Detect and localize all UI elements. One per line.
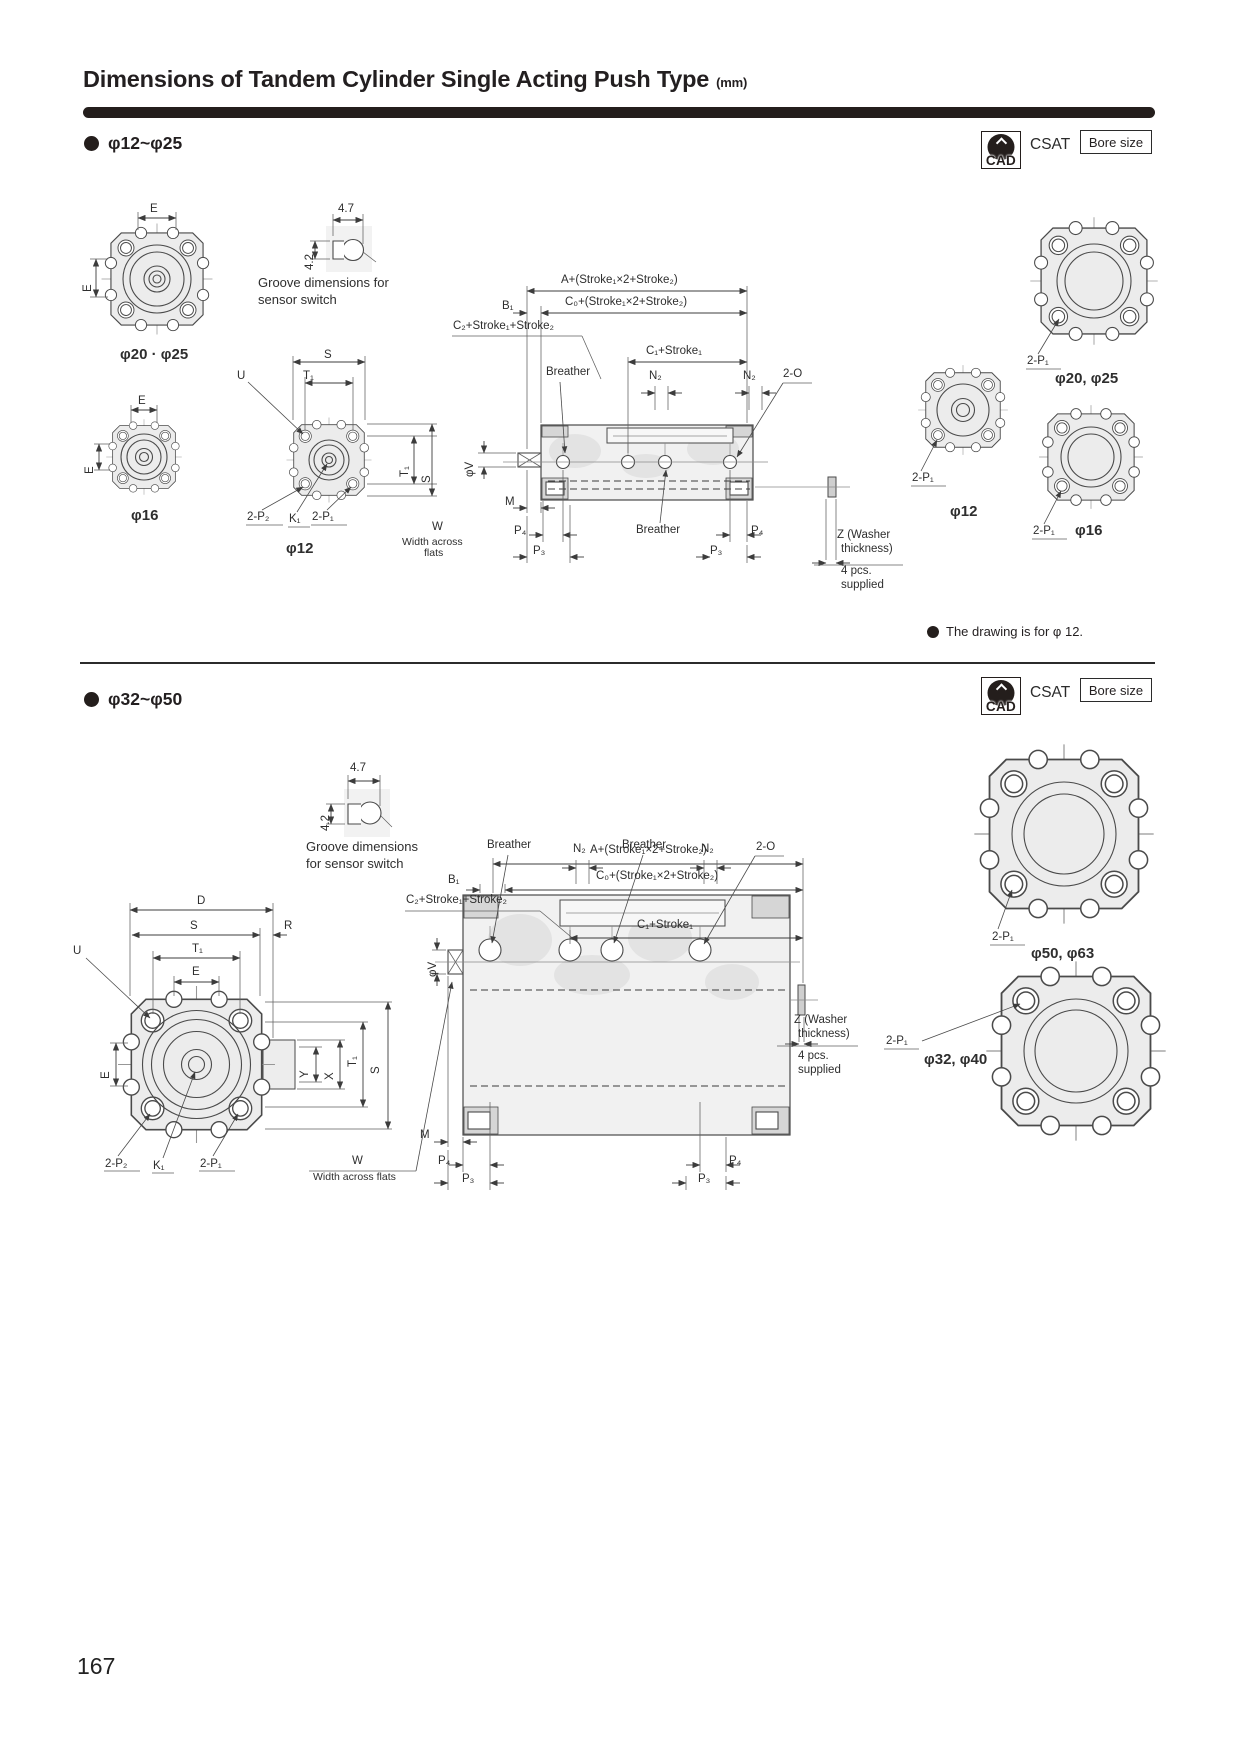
side-section-view-s1 bbox=[452, 286, 903, 565]
section-divider bbox=[80, 662, 1155, 664]
side-section-view-s2 bbox=[309, 855, 858, 1190]
rear-view-phi32-40 bbox=[884, 961, 1166, 1140]
mounting-face-view-phi12 bbox=[246, 356, 437, 527]
rear-view-phi20-25 bbox=[1026, 217, 1158, 369]
drawing-note-text: The drawing is for φ 12. bbox=[946, 624, 1083, 639]
cad-label: CAD bbox=[986, 700, 1016, 714]
sensor-groove-detail-2 bbox=[326, 775, 392, 837]
cad-label: CAD bbox=[986, 154, 1016, 168]
rear-view-phi16 bbox=[1032, 405, 1143, 539]
drawings-layer bbox=[0, 0, 1240, 1754]
drawing-note: The drawing is for φ 12. bbox=[927, 624, 1083, 639]
rear-view-phi50-63 bbox=[974, 744, 1153, 945]
front-view-phi32-50 bbox=[86, 903, 392, 1173]
page-number: 167 bbox=[77, 1653, 115, 1680]
bullet-icon bbox=[927, 626, 939, 638]
sensor-groove-detail bbox=[310, 214, 376, 272]
front-view-phi20-25 bbox=[90, 212, 212, 334]
front-view-phi16 bbox=[94, 405, 182, 495]
catalog-page: Dimensions of Tandem Cylinder Single Act… bbox=[0, 0, 1240, 1754]
rear-view-phi12 bbox=[911, 365, 1008, 486]
